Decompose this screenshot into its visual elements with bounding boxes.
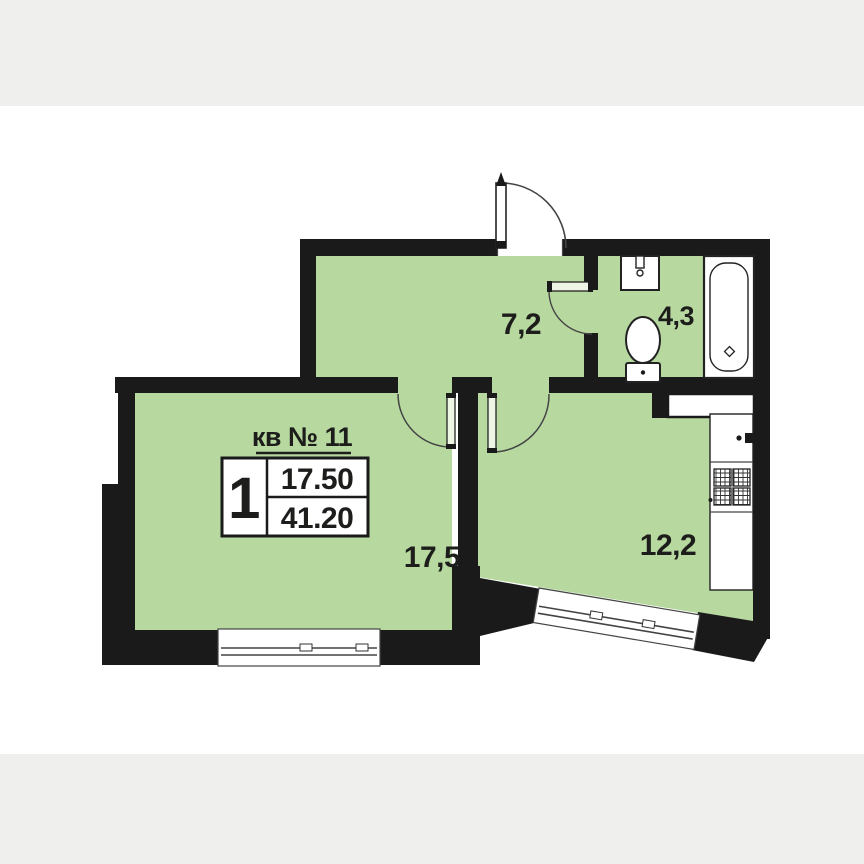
hall-floor	[316, 256, 585, 378]
kitchen-counter	[709, 414, 755, 590]
living-door-tip-cap	[446, 444, 456, 449]
bathroom-door-leaf	[549, 282, 592, 291]
bathtub-icon	[704, 256, 754, 378]
sink-faucet	[745, 433, 754, 443]
wall-central	[458, 393, 478, 578]
basin-drain	[637, 270, 643, 276]
living-room-area-label: 17,5	[404, 541, 460, 574]
living-door-hinge	[446, 393, 456, 398]
toilet-button	[641, 370, 645, 374]
wall-left-upper	[118, 377, 135, 484]
window-vent-mark	[300, 644, 312, 651]
entrance-opening	[497, 239, 563, 256]
entrance-door-leaf	[496, 183, 506, 248]
entrance-door-hinge	[496, 241, 506, 248]
kitchen-doorway-floor	[492, 377, 549, 393]
wall-living-top	[115, 377, 398, 393]
wall-door-pier	[452, 377, 492, 393]
rooms-count-value: 1	[228, 466, 260, 531]
basin-faucet	[636, 256, 644, 268]
total-area-value: 41.20	[281, 502, 354, 535]
kitchen-area-label: 12,2	[640, 529, 696, 562]
bathroom-door-hinge	[588, 281, 593, 292]
sink-drain	[736, 435, 741, 440]
entrance-threshold	[497, 239, 563, 256]
wall-top-left-segment	[300, 239, 497, 256]
bathtub-outer	[704, 256, 754, 378]
burner	[733, 488, 750, 505]
wall-top-right-segment	[563, 239, 770, 256]
kitchen-door-leaf	[488, 395, 496, 452]
wash-basin-icon	[621, 256, 659, 290]
living-area-value: 17.50	[281, 463, 354, 496]
burner	[714, 469, 731, 486]
bathroom-area-label: 4,3	[658, 301, 695, 331]
toilet-bowl	[626, 317, 660, 363]
kitchen-window-vent-mark2	[642, 620, 655, 629]
bathroom-door-tip-cap	[547, 281, 552, 292]
toilet-icon	[626, 317, 660, 382]
floor-plan: кв № 11 1 17.50 41.20 7,2 4,3 17,5 12,2	[0, 0, 864, 864]
burner	[733, 469, 750, 486]
wall-hall-left	[300, 239, 316, 393]
stove-knob	[709, 498, 713, 502]
top-gray-band	[0, 0, 864, 106]
bathroom-doorway-floor	[584, 290, 598, 333]
burner	[714, 488, 731, 505]
wall-right-outer	[753, 239, 770, 639]
wall-left-lower	[102, 484, 135, 630]
window-vent-mark2	[356, 644, 368, 651]
wall-bath-partition-lower	[584, 333, 598, 378]
kitchen-door-hinge	[487, 393, 497, 398]
living-door-leaf	[447, 395, 455, 448]
hall-area-label: 7,2	[501, 308, 541, 341]
apartment-number-label: кв № 11	[252, 422, 353, 452]
kitchen-window-vent-mark	[590, 611, 603, 620]
kitchen-door-tip-cap	[487, 448, 497, 453]
living-doorway-floor	[398, 377, 452, 393]
bottom-gray-band	[0, 754, 864, 864]
living-room-window	[218, 629, 380, 666]
